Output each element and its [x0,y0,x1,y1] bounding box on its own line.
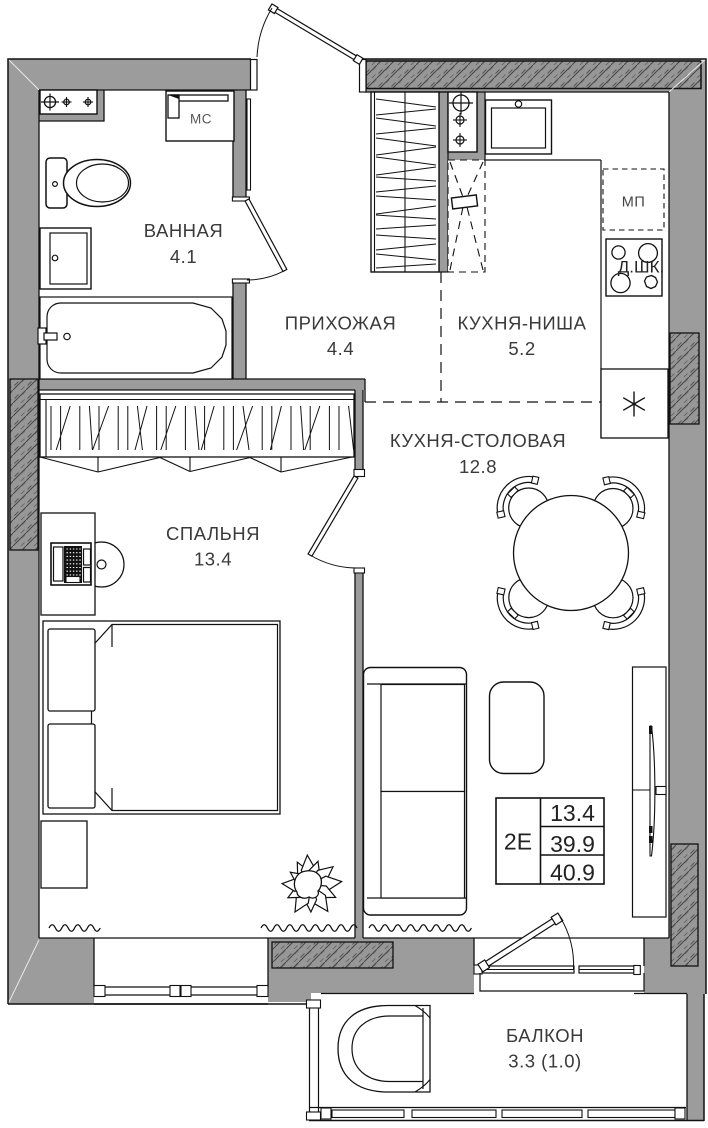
svg-text:БАЛКОН: БАЛКОН [506,1025,584,1046]
svg-text:МС: МС [190,112,212,127]
svg-text:ВАННАЯ: ВАННАЯ [144,220,223,241]
svg-text:13.4: 13.4 [550,800,595,826]
svg-text:5.2: 5.2 [508,338,535,359]
svg-text:3.3 (1.0): 3.3 (1.0) [508,1051,581,1072]
svg-text:КУХНЯ-СТОЛОВАЯ: КУХНЯ-СТОЛОВАЯ [390,430,566,451]
svg-text:СПАЛЬНЯ: СПАЛЬНЯ [166,523,260,544]
svg-text:2Е: 2Е [504,829,532,855]
svg-text:39.9: 39.9 [550,831,595,857]
svg-text:40.9: 40.9 [550,860,595,886]
svg-text:КУХНЯ-НИША: КУХНЯ-НИША [458,313,587,334]
svg-text:МП: МП [622,195,646,211]
svg-text:13.4: 13.4 [194,549,232,570]
svg-text:ПРИХОЖАЯ: ПРИХОЖАЯ [285,313,396,334]
svg-text:4.4: 4.4 [327,338,354,359]
svg-text:Д.ШК.: Д.ШК. [618,258,664,277]
svg-text:12.8: 12.8 [459,456,497,477]
svg-text:4.1: 4.1 [170,246,197,267]
